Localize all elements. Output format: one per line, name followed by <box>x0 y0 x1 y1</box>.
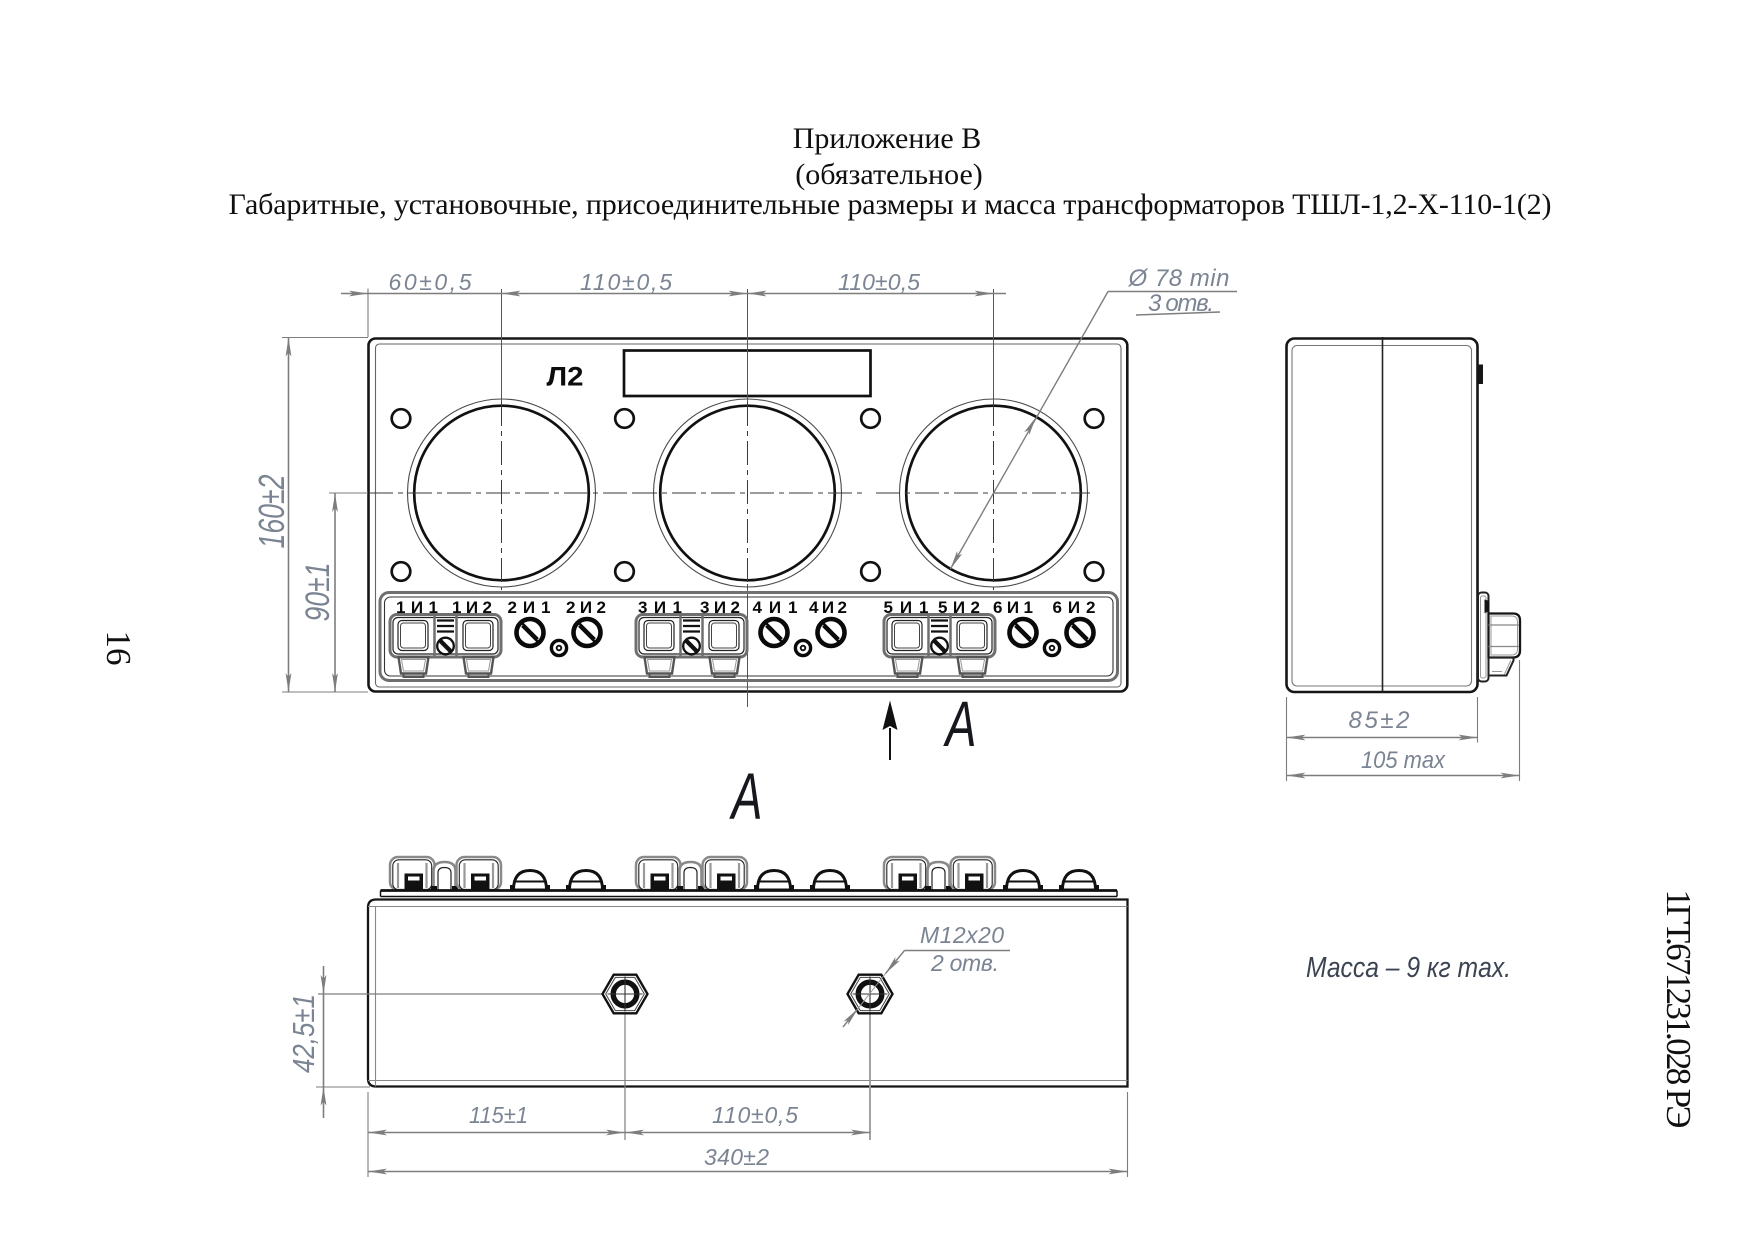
svg-text:6И2: 6И2 <box>1053 598 1098 617</box>
svg-text:Габаритные, установочные, прис: Габаритные, установочные, присоединитель… <box>229 188 1552 221</box>
svg-text:115±1: 115±1 <box>469 1102 528 1128</box>
svg-text:4И1: 4И1 <box>753 598 800 617</box>
svg-text:105 max: 105 max <box>1361 747 1446 774</box>
svg-text:42,5±1: 42,5±1 <box>286 994 321 1073</box>
svg-text:2 отв.: 2 отв. <box>930 950 999 976</box>
svg-text:160±2: 160±2 <box>251 475 292 549</box>
svg-text:Л2: Л2 <box>547 362 584 392</box>
svg-text:2И2: 2И2 <box>566 598 608 617</box>
svg-text:110±0,5: 110±0,5 <box>838 269 920 295</box>
svg-text:(обязательное): (обязательное) <box>795 158 983 191</box>
svg-text:2И1: 2И1 <box>508 598 553 617</box>
svg-text:340±2: 340±2 <box>704 1144 769 1170</box>
svg-text:85±2: 85±2 <box>1349 707 1410 734</box>
svg-text:110±0,5: 110±0,5 <box>580 269 672 295</box>
svg-text:110±0,5: 110±0,5 <box>712 1102 798 1128</box>
svg-text:Приложение В: Приложение В <box>793 122 982 155</box>
svg-text:16: 16 <box>99 631 138 666</box>
svg-text:М12x20: М12x20 <box>920 922 1004 948</box>
svg-text:60±0,5: 60±0,5 <box>389 269 472 295</box>
svg-text:А: А <box>729 759 763 833</box>
svg-text:6И1: 6И1 <box>993 598 1035 617</box>
svg-text:3 отв.: 3 отв. <box>1148 290 1214 317</box>
svg-text:90±1: 90±1 <box>299 563 337 622</box>
svg-text:1ГТ.671231.028 РЭ: 1ГТ.671231.028 РЭ <box>1659 890 1698 1129</box>
svg-text:4И2: 4И2 <box>809 598 849 617</box>
svg-text:А: А <box>943 688 977 760</box>
svg-text:Ø 78 min: Ø 78 min <box>1128 265 1230 292</box>
svg-text:Масса – 9 кг max.: Масса – 9 кг max. <box>1306 952 1511 984</box>
